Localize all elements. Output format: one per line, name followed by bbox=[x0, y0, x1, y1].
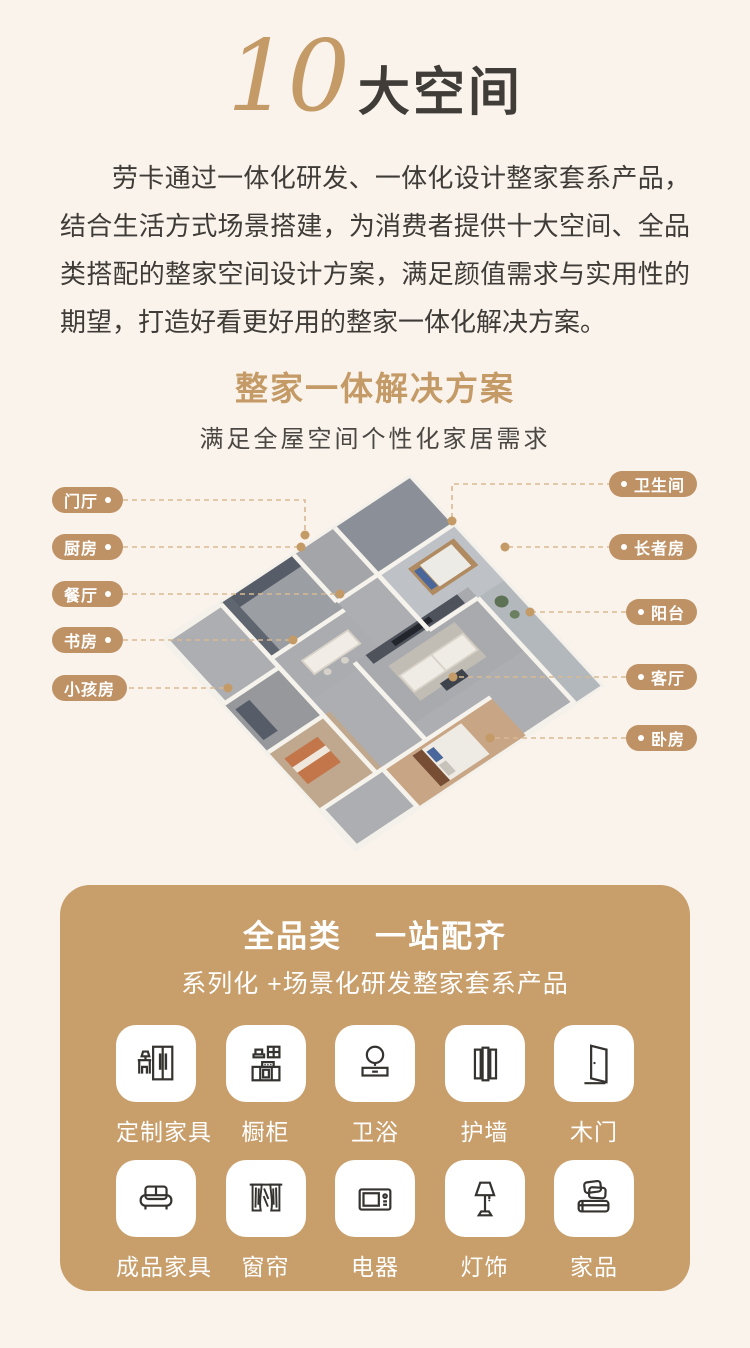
product-item: 成品家具 bbox=[116, 1160, 196, 1282]
product-tile bbox=[335, 1160, 415, 1237]
floorplan-figure: 门厅 厨房 餐厅 书房 小孩房 卫生间 长者房 阳台 客厅 卧房 bbox=[0, 456, 750, 868]
solution-subtitle: 满足全屋空间个性化家居需求 bbox=[0, 419, 750, 454]
kitchen-cabinet-icon bbox=[243, 1041, 289, 1087]
room-pill-kids-room: 小孩房 bbox=[52, 675, 127, 701]
products-subtitle: 系列化 +场景化研发整家套系产品 bbox=[116, 964, 634, 1000]
product-item: 定制家具 bbox=[116, 1025, 196, 1147]
product-tile bbox=[116, 1160, 196, 1237]
hero-number: 10 bbox=[227, 28, 348, 126]
wall-panel-icon bbox=[462, 1041, 508, 1087]
room-pill-label: 餐厅 bbox=[64, 582, 98, 606]
pill-dot bbox=[638, 674, 644, 680]
room-pill-label: 客厅 bbox=[651, 665, 685, 689]
pill-dot bbox=[105, 544, 111, 550]
pill-dot bbox=[638, 609, 644, 615]
room-pill-study: 书房 bbox=[52, 627, 123, 653]
room-pill-dining: 餐厅 bbox=[52, 581, 123, 607]
wardrobe-icon bbox=[133, 1041, 179, 1087]
room-pill-bedroom: 卧房 bbox=[626, 725, 697, 751]
product-label: 家品 bbox=[554, 1248, 634, 1282]
product-tile bbox=[445, 1025, 525, 1102]
product-label: 卫浴 bbox=[335, 1113, 415, 1147]
room-pill-label: 卫生间 bbox=[634, 472, 685, 496]
pill-dot bbox=[621, 481, 627, 487]
solution-title: 整家一体解决方案 bbox=[0, 362, 750, 410]
product-item: 橱柜 bbox=[226, 1025, 306, 1147]
product-label: 木门 bbox=[554, 1113, 634, 1147]
room-pill-elder-room: 长者房 bbox=[609, 534, 697, 560]
product-item: 木门 bbox=[554, 1025, 634, 1147]
product-label: 护墙 bbox=[445, 1113, 525, 1147]
product-tile bbox=[116, 1025, 196, 1102]
product-label: 成品家具 bbox=[116, 1248, 196, 1282]
product-item: 电器 bbox=[335, 1160, 415, 1282]
product-item: 灯饰 bbox=[445, 1160, 525, 1282]
pill-dot bbox=[621, 544, 627, 550]
room-pill-bathroom: 卫生间 bbox=[609, 471, 697, 497]
room-pill-label: 阳台 bbox=[651, 600, 685, 624]
door-icon bbox=[571, 1041, 617, 1087]
pill-dot bbox=[638, 735, 644, 741]
room-pill-label: 小孩房 bbox=[64, 676, 115, 700]
products-title: 全品类 一站配齐 bbox=[116, 911, 634, 956]
product-label: 窗帘 bbox=[226, 1248, 306, 1282]
room-pill-label: 长者房 bbox=[634, 535, 685, 559]
lamp-icon bbox=[462, 1176, 508, 1222]
bedding-icon bbox=[571, 1176, 617, 1222]
product-tile bbox=[226, 1025, 306, 1102]
appliance-icon bbox=[352, 1176, 398, 1222]
product-label: 灯饰 bbox=[445, 1248, 525, 1282]
product-tile bbox=[335, 1025, 415, 1102]
product-label: 定制家具 bbox=[116, 1113, 196, 1147]
products-grid: 定制家具 橱柜 bbox=[116, 1025, 634, 1282]
product-item: 窗帘 bbox=[226, 1160, 306, 1282]
room-pill-label: 门厅 bbox=[64, 488, 98, 512]
room-pill-label: 厨房 bbox=[64, 535, 98, 559]
sofa-icon bbox=[133, 1176, 179, 1222]
room-pill-label: 书房 bbox=[64, 628, 98, 652]
pill-dot bbox=[105, 591, 111, 597]
room-pill-entry: 门厅 bbox=[52, 487, 123, 513]
floorplan-illustration bbox=[0, 456, 750, 868]
product-item: 护墙 bbox=[445, 1025, 525, 1147]
room-pill-label: 卧房 bbox=[651, 726, 685, 750]
promo-page: 10 大空间 劳卡通过一体化研发、一体化设计整家套系产品，结合生活方式场景搭建，… bbox=[0, 0, 750, 1291]
intro-paragraph: 劳卡通过一体化研发、一体化设计整家套系产品，结合生活方式场景搭建，为消费者提供十… bbox=[60, 154, 690, 346]
product-tile bbox=[226, 1160, 306, 1237]
product-item: 家品 bbox=[554, 1160, 634, 1282]
curtain-icon bbox=[243, 1176, 289, 1222]
pill-dot bbox=[105, 637, 111, 643]
pill-dot bbox=[105, 497, 111, 503]
bath-icon bbox=[352, 1041, 398, 1087]
product-label: 电器 bbox=[335, 1248, 415, 1282]
product-tile bbox=[554, 1160, 634, 1237]
solution-section: 整家一体解决方案 满足全屋空间个性化家居需求 bbox=[0, 362, 750, 454]
product-label: 橱柜 bbox=[226, 1113, 306, 1147]
product-item: 卫浴 bbox=[335, 1025, 415, 1147]
products-card: 全品类 一站配齐 系列化 +场景化研发整家套系产品 定制家具 bbox=[60, 885, 690, 1291]
room-pill-kitchen: 厨房 bbox=[52, 534, 123, 560]
hero-title: 大空间 bbox=[358, 50, 523, 125]
room-pill-balcony: 阳台 bbox=[626, 599, 697, 625]
product-tile bbox=[554, 1025, 634, 1102]
room-pill-living-room: 客厅 bbox=[626, 664, 697, 690]
product-tile bbox=[445, 1160, 525, 1237]
hero: 10 大空间 bbox=[0, 0, 750, 140]
